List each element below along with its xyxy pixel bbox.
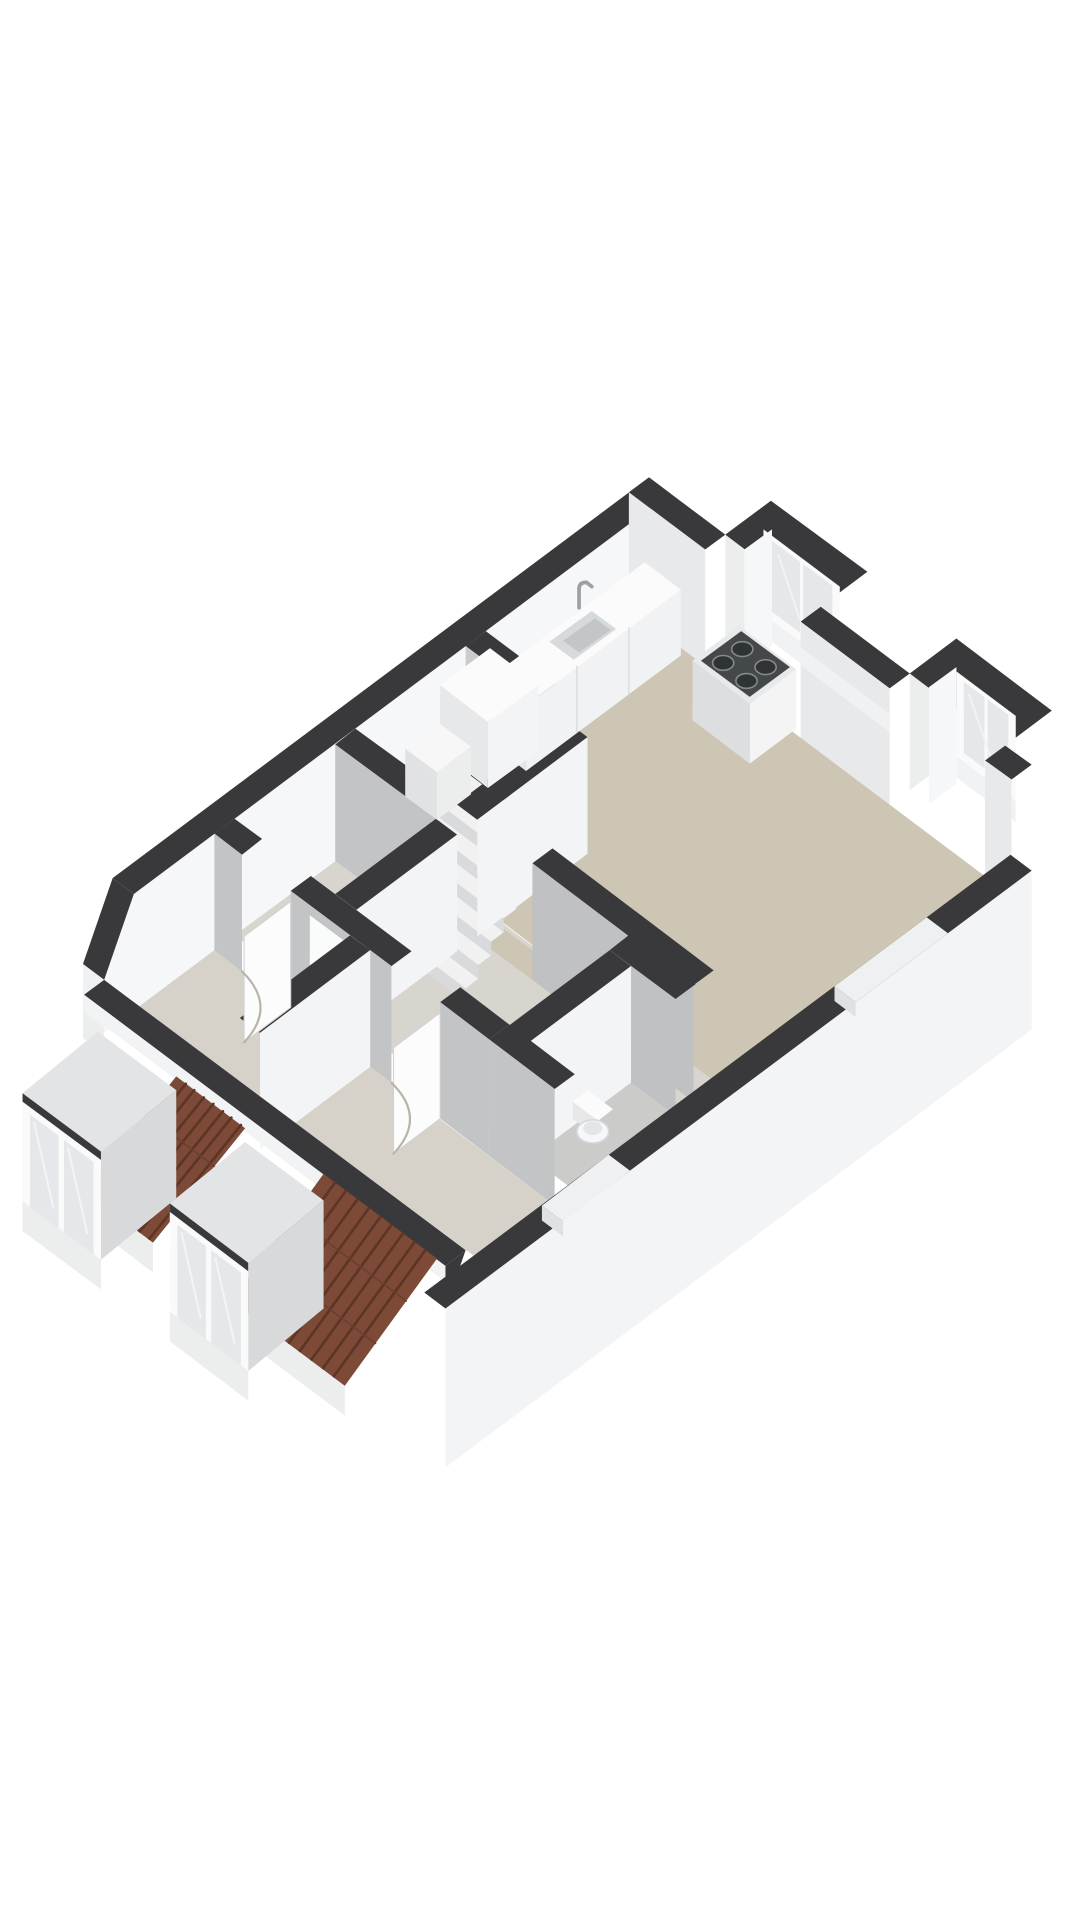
floorplan-group [23, 477, 1052, 1467]
stove-burner [732, 642, 753, 657]
stove-burner [713, 655, 734, 670]
toilet-seat [583, 1121, 602, 1135]
stove-burner [755, 660, 776, 675]
hall-bedroom-wall-face-1 [214, 834, 242, 972]
floorplan-3d-render [0, 0, 1080, 1920]
floorplan-canvas [0, 0, 1080, 1920]
stove-burner [736, 674, 757, 689]
bay2-interior-side-face [929, 667, 957, 804]
